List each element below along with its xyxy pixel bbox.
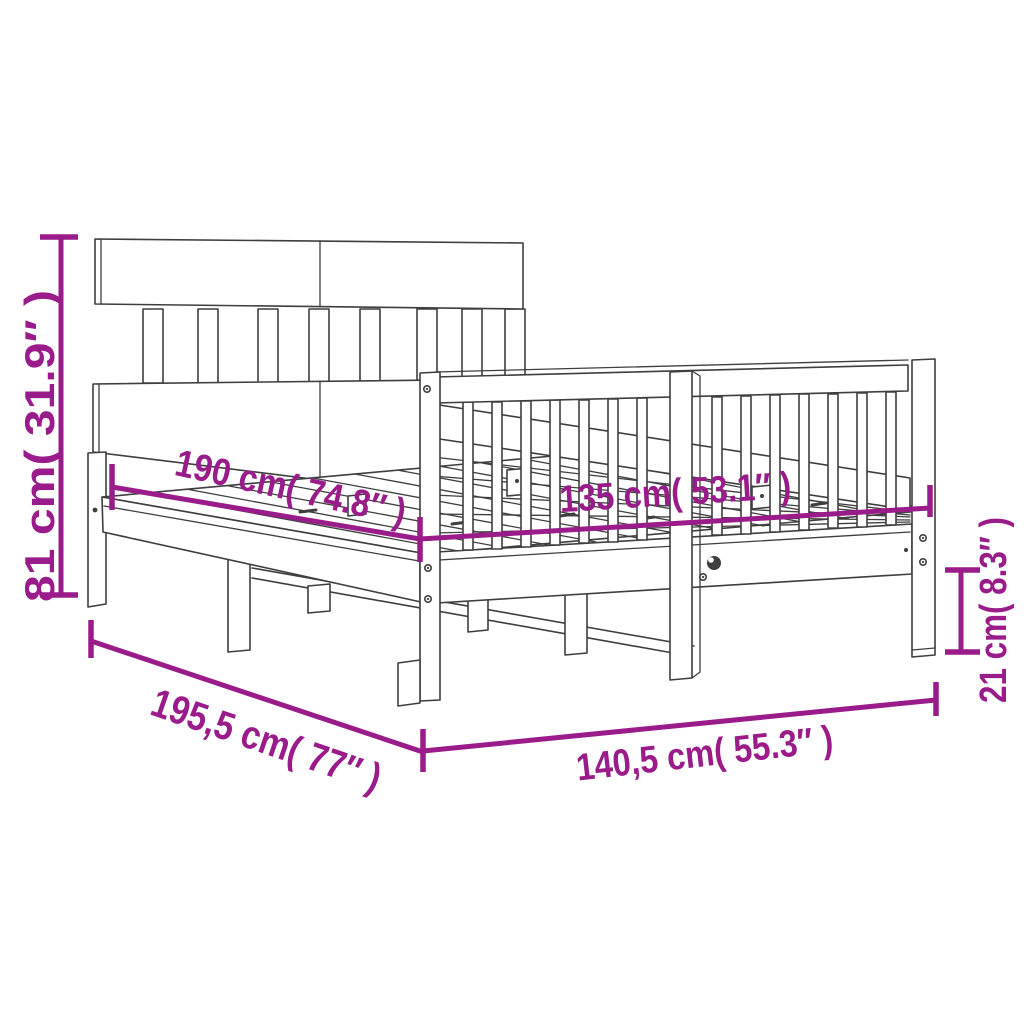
dim-label: 140,5 cm( 55.3″ ) <box>574 719 835 790</box>
dim-headboard-height: 81 cm( 31.9″ ) <box>16 237 78 602</box>
dim-label: 21 cm( 8.3″ ) <box>973 517 1015 703</box>
dim-outer-length: 195,5 cm( 77″ ) <box>91 620 423 801</box>
screw-icon <box>93 508 98 513</box>
headboard-slats <box>143 309 525 383</box>
headboard-top-board <box>95 239 523 309</box>
dim-outer-width: 140,5 cm( 55.3″ ) <box>423 682 936 790</box>
keyhole-highlight <box>708 557 714 563</box>
near-post-foot <box>398 660 420 706</box>
product-dimension-diagram: 81 cm( 31.9″ ) 190 cm( 74.8″ ) 135 cm( 5… <box>0 0 1024 1024</box>
bed-frame-diagram-canvas: 81 cm( 31.9″ ) 190 cm( 74.8″ ) 135 cm( 5… <box>0 0 1024 1024</box>
dim-under-frame-height: 21 cm( 8.3″ ) <box>945 517 1015 703</box>
centre-beam-foot <box>308 584 330 613</box>
bracket-screw-icon <box>515 479 519 483</box>
dim-label: 81 cm( 31.9″ ) <box>16 290 63 602</box>
